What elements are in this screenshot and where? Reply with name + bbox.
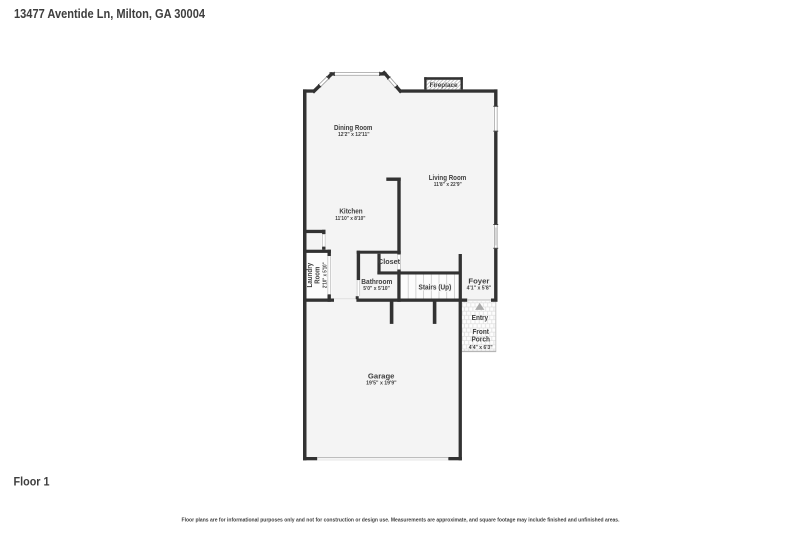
svg-text:Foyer: Foyer (468, 277, 489, 286)
svg-text:Dining Room: Dining Room (334, 123, 373, 132)
svg-text:4'1" x 5'8": 4'1" x 5'8" (467, 286, 492, 292)
svg-text:Bathroom: Bathroom (361, 277, 392, 286)
svg-text:Floor 1: Floor 1 (14, 474, 50, 488)
svg-text:Living Room: Living Room (429, 173, 467, 182)
svg-text:Stairs (Up): Stairs (Up) (419, 283, 452, 292)
svg-text:19'5" x 19'9": 19'5" x 19'9" (366, 380, 397, 386)
svg-text:4'4" x 6'3": 4'4" x 6'3" (469, 345, 493, 351)
svg-text:5'0" x 5'10": 5'0" x 5'10" (363, 286, 390, 292)
svg-text:13477 Aventide Ln, Milton, GA: 13477 Aventide Ln, Milton, GA 30004 (14, 6, 206, 21)
svg-text:Kitchen: Kitchen (339, 206, 363, 215)
svg-text:Garage: Garage (368, 371, 395, 380)
svg-text:Floor plans are for informatio: Floor plans are for informational purpos… (182, 517, 621, 523)
svg-text:11'8" x 22'9": 11'8" x 22'9" (434, 182, 462, 188)
svg-text:Porch: Porch (471, 335, 490, 344)
svg-text:Closet: Closet (378, 259, 401, 266)
svg-text:2'10" x 5'10": 2'10" x 5'10" (323, 262, 329, 288)
svg-text:Entry: Entry (472, 313, 489, 322)
svg-text:Laundry: Laundry (307, 263, 314, 288)
svg-text:Room: Room (315, 267, 322, 284)
svg-text:12'2" x 12'11": 12'2" x 12'11" (338, 132, 370, 138)
svg-text:Fireplace: Fireplace (430, 82, 458, 89)
svg-text:11'10" x 8'10": 11'10" x 8'10" (335, 216, 365, 222)
